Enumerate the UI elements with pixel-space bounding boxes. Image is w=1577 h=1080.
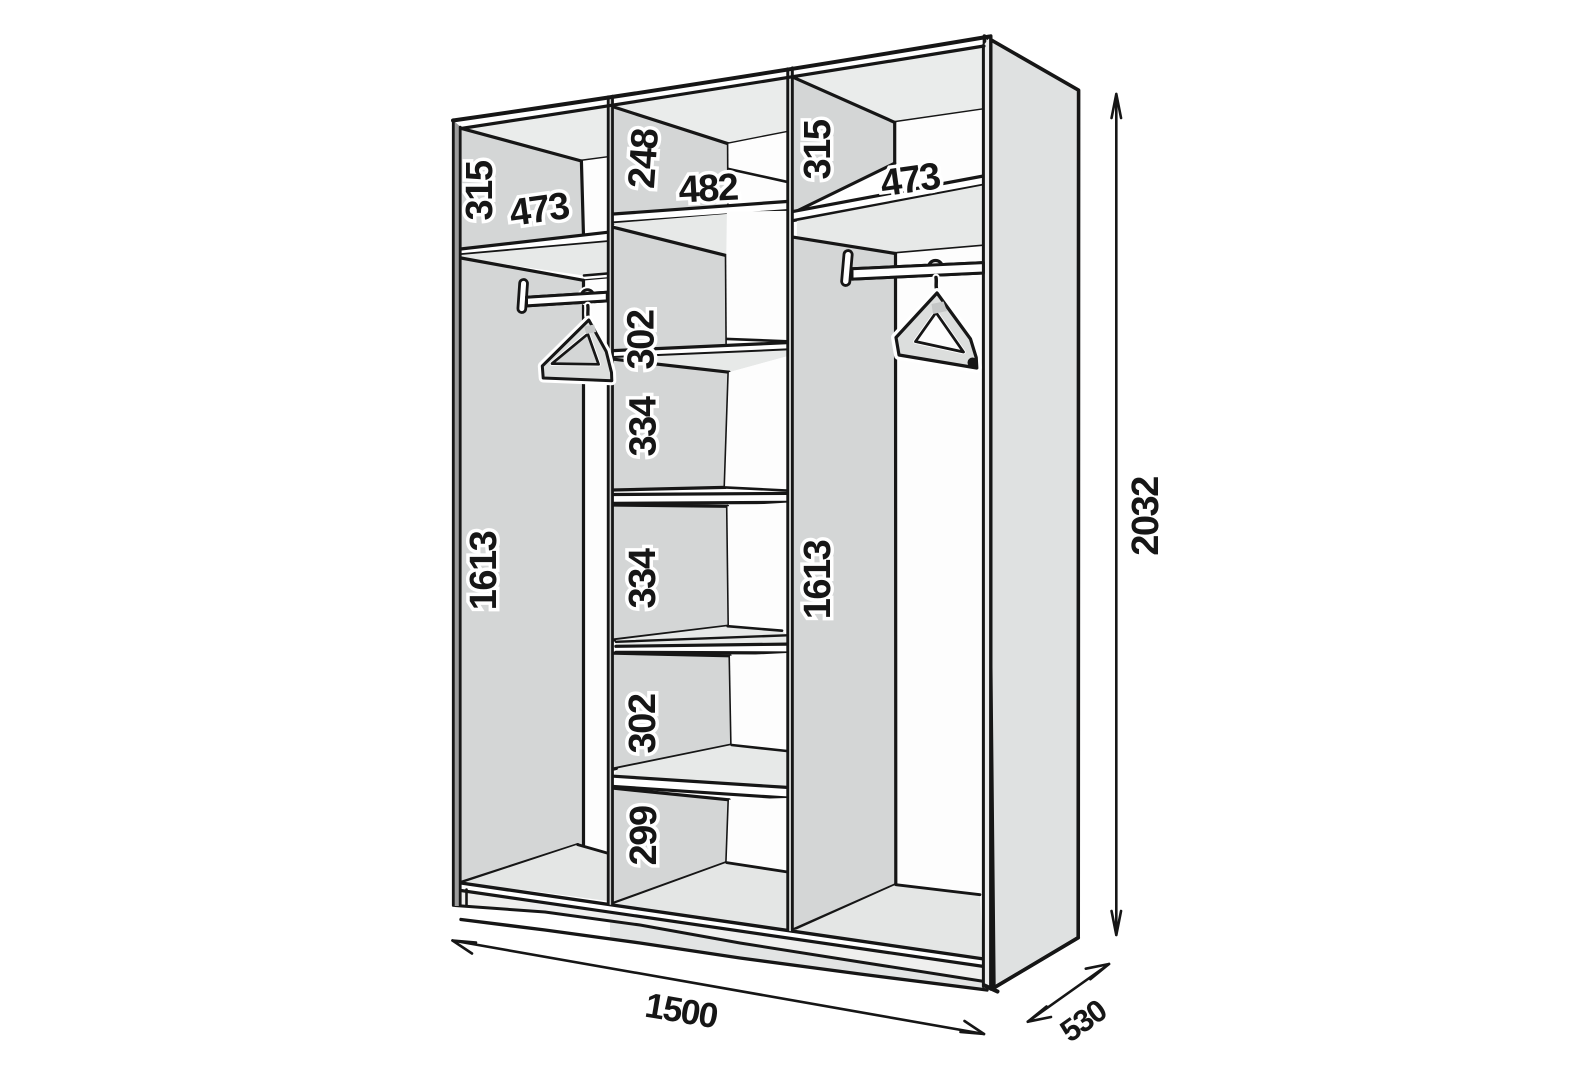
svg-text:482: 482 [677, 166, 738, 211]
svg-text:2032: 2032 [1125, 477, 1167, 556]
svg-text:315: 315 [797, 119, 839, 179]
svg-text:334: 334 [623, 396, 665, 456]
svg-text:302: 302 [621, 310, 663, 369]
svg-text:473: 473 [878, 155, 943, 205]
svg-text:299: 299 [623, 806, 665, 865]
svg-text:248: 248 [621, 128, 667, 190]
svg-text:302: 302 [622, 694, 664, 753]
svg-text:334: 334 [622, 548, 664, 608]
svg-text:1613: 1613 [797, 540, 839, 619]
svg-text:315: 315 [459, 160, 501, 220]
svg-text:1613: 1613 [463, 531, 505, 610]
svg-text:473: 473 [507, 185, 572, 235]
